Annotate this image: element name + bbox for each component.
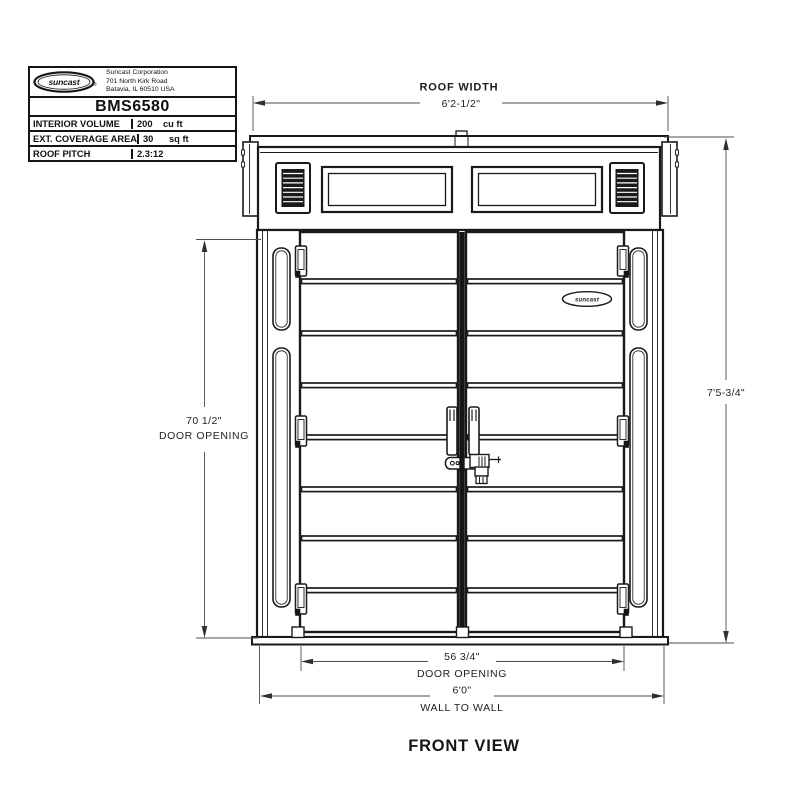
drawing-sheet: suncast ® Suncast Corporation 701 North … [0, 0, 800, 800]
spec-value: 200 [131, 119, 163, 129]
door-rib [302, 536, 457, 541]
hinge [296, 416, 307, 448]
door-rib [302, 279, 457, 284]
dim-label: ROOF WIDTH [420, 82, 499, 94]
spec-label: EXT. COVERAGE AREA [30, 134, 137, 144]
dim-value: 56 3/4" [444, 651, 480, 663]
model-number: BMS6580 [30, 98, 235, 117]
dim-roof-width: ROOF WIDTH 6'2-1/2" [253, 82, 668, 132]
door-rib [468, 279, 623, 284]
hinge [296, 246, 307, 278]
dim-value: 6'0" [452, 685, 471, 697]
door-rib [468, 487, 623, 492]
spec-value: 30 [137, 134, 169, 144]
suncast-logo-graphic: suncast ® [32, 70, 102, 94]
arrowhead [723, 631, 729, 643]
right-window [472, 167, 602, 212]
door-rib [468, 588, 623, 593]
logo-wordmark: suncast [48, 77, 80, 87]
arrowhead [202, 626, 208, 638]
dim-value: 70 1/2" [186, 415, 222, 427]
door-rib [468, 383, 623, 388]
arrowhead [301, 659, 313, 665]
view-title: FRONT VIEW [384, 737, 544, 756]
right-eave-strip [662, 142, 679, 216]
dim-label: WALL TO WALL [420, 702, 503, 714]
spec-row-roof-pitch: ROOF PITCH 2.3:12 [30, 147, 235, 160]
company-line: 701 North Kirk Road [106, 78, 233, 87]
title-block: suncast ® Suncast Corporation 701 North … [28, 66, 237, 162]
door-rib [302, 383, 457, 388]
door-astragal [459, 232, 464, 637]
left-vent [276, 163, 310, 213]
dim-value: 6'2-1/2" [442, 98, 481, 110]
arrowhead [253, 100, 265, 106]
spec-row-coverage-area: EXT. COVERAGE AREA 30 sq ft [30, 132, 235, 147]
dim-label: DOOR OPENING [159, 430, 249, 442]
spec-row-interior-volume: INTERIOR VOLUME 200 cu ft [30, 117, 235, 132]
title-block-header: suncast ® Suncast Corporation 701 North … [30, 68, 235, 98]
registered-mark: ® [93, 81, 97, 88]
right-vent [610, 163, 644, 213]
dim-value: 7'5-3/4" [707, 387, 745, 399]
arrowhead [656, 100, 668, 106]
right-door-handle [469, 407, 479, 455]
company-address: Suncast Corporation 701 North Kirk Road … [104, 69, 233, 95]
right-door [466, 232, 624, 632]
company-line: Batavia, IL 60510 USA [106, 86, 233, 95]
hinge [618, 584, 629, 616]
arrowhead [612, 659, 624, 665]
door-foot [457, 627, 469, 638]
suncast-logo: suncast ® [32, 70, 104, 94]
door-rib [468, 331, 623, 336]
door-rib [302, 331, 457, 336]
door-rib [302, 487, 457, 492]
spec-unit: sq ft [169, 134, 235, 144]
arrowhead [260, 693, 272, 699]
spec-label: INTERIOR VOLUME [30, 119, 131, 129]
spec-label: ROOF PITCH [30, 149, 131, 159]
vent-louvers [617, 174, 637, 202]
left-door-handle [447, 407, 457, 455]
spec-unit: cu ft [163, 119, 235, 129]
hinge [296, 584, 307, 616]
dim-label: DOOR OPENING [417, 668, 507, 680]
spec-value: 2.3:12 [131, 149, 163, 159]
hinge [618, 416, 629, 448]
door-rib [468, 536, 623, 541]
left-window [322, 167, 452, 212]
arrowhead [723, 138, 729, 150]
vent-louvers [283, 174, 303, 202]
door-rib [468, 435, 623, 440]
company-line: Suncast Corporation [106, 69, 233, 78]
door-foot [292, 627, 304, 638]
dim-door-opening-height: 70 1/2" DOOR OPENING [159, 240, 261, 639]
arrowhead [652, 693, 664, 699]
door-rib [302, 588, 457, 593]
door-logo-wordmark: suncast [575, 298, 600, 304]
door-suncast-logo: suncast [563, 292, 612, 307]
left-door [300, 232, 458, 632]
arrowhead [202, 240, 208, 252]
door-foot [620, 627, 632, 638]
door-rib [302, 435, 457, 440]
dim-door-opening-width: 56 3/4" DOOR OPENING [301, 646, 624, 680]
hinge [618, 246, 629, 278]
left-eave-strip [242, 142, 259, 216]
